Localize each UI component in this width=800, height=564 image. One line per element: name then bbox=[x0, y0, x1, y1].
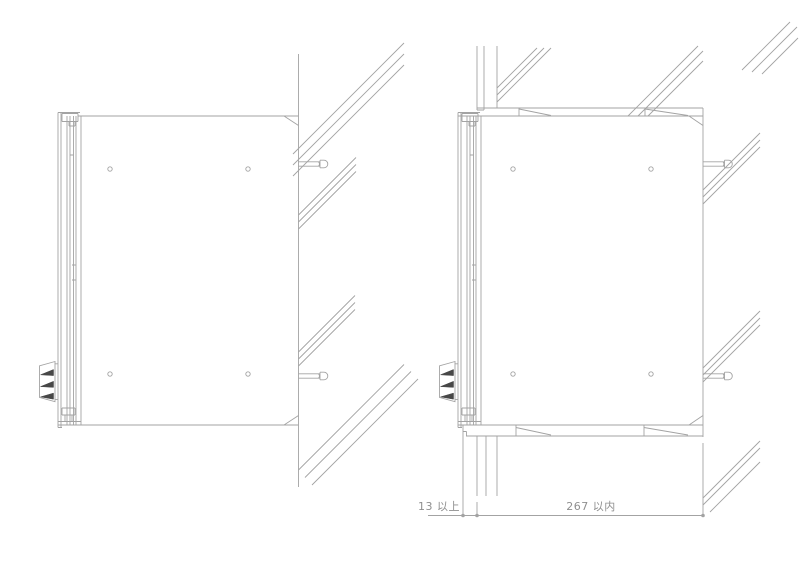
mounting-hole bbox=[246, 372, 250, 376]
mounting-holes bbox=[108, 167, 250, 376]
dimension-marker bbox=[475, 514, 479, 518]
anchor-bolt-bottom bbox=[299, 372, 328, 380]
upper-wall-boards bbox=[477, 46, 497, 110]
mounting-hole bbox=[108, 372, 112, 376]
door-panel bbox=[58, 113, 81, 428]
dimension-annotations: 13 以上 267 以内 bbox=[418, 425, 705, 517]
door-knob bbox=[440, 362, 459, 402]
wall-hatch-marks bbox=[497, 22, 798, 512]
dimension-marker bbox=[461, 514, 465, 518]
knob-grip-fins bbox=[41, 370, 54, 400]
door-panel bbox=[458, 113, 481, 428]
mounting-hole bbox=[511, 167, 515, 171]
box-outline bbox=[458, 116, 703, 425]
mounting-hole bbox=[649, 372, 653, 376]
dimension-label-recess-width: 267 以内 bbox=[566, 499, 616, 513]
recess-top-board bbox=[458, 108, 703, 116]
mounting-hole bbox=[246, 167, 250, 171]
anchor-bolt-top bbox=[703, 160, 732, 168]
right-view-recessed-mount bbox=[440, 22, 799, 516]
technical-drawing: 13 以上 267 以内 bbox=[0, 0, 800, 564]
mounting-hole bbox=[511, 372, 515, 376]
mounting-hole bbox=[649, 167, 653, 171]
mounting-hole bbox=[108, 167, 112, 171]
recess-bottom-board bbox=[463, 425, 703, 436]
dimension-extension-lines bbox=[463, 425, 477, 516]
wall-hatch-marks bbox=[293, 43, 418, 485]
box-outline bbox=[58, 116, 299, 425]
anchor-bolt-bottom bbox=[703, 372, 732, 380]
mounting-holes bbox=[511, 167, 653, 376]
lower-wall-boards bbox=[477, 436, 497, 496]
dimension-label-front-clearance: 13 以上 bbox=[418, 500, 460, 513]
knob-grip-fins bbox=[441, 370, 454, 400]
left-view-surface-mount bbox=[40, 43, 419, 487]
door-knob bbox=[40, 362, 59, 402]
dimension-marker bbox=[701, 514, 705, 518]
drawing-canvas: 13 以上 267 以内 bbox=[0, 0, 800, 564]
